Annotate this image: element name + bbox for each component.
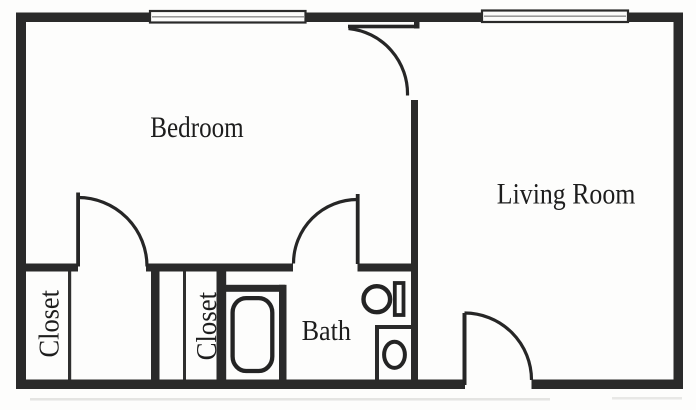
svg-text:Bath: Bath	[302, 315, 352, 347]
svg-text:Closet: Closet	[34, 290, 66, 358]
svg-text:Closet: Closet	[191, 292, 223, 361]
svg-text:Living Room: Living Room	[497, 178, 636, 211]
svg-text:Bedroom: Bedroom	[150, 111, 243, 144]
